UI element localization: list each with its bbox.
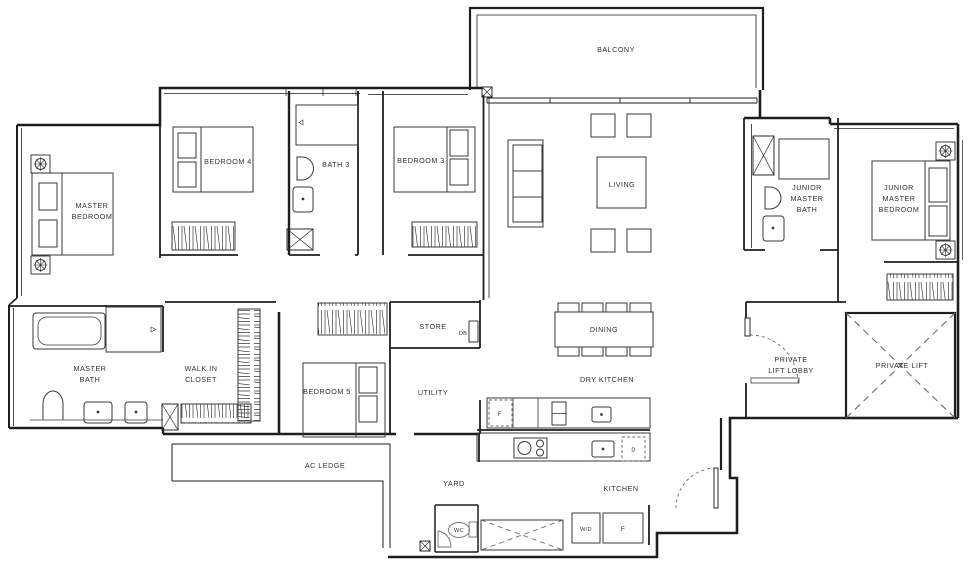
sliding-door xyxy=(487,98,757,103)
label-fridge-dry-kitchen: F xyxy=(498,411,502,418)
dashed-elements xyxy=(481,313,955,550)
lobby-door-leaf xyxy=(745,318,750,336)
label-kitchen: KITCHEN xyxy=(603,484,638,493)
label-dry-kitchen: DRY KITCHEN xyxy=(580,375,634,384)
label-fridge-kitchen: F xyxy=(621,526,625,533)
furniture xyxy=(30,105,953,550)
crosshair-master-top xyxy=(31,155,50,173)
label-jr-master-bedroom-2: MASTER xyxy=(883,194,916,203)
ac-ledge-outline xyxy=(172,444,390,548)
label-master-bath-1: MASTER xyxy=(74,364,107,373)
exterior-top-right xyxy=(744,90,958,124)
label-wc: WC xyxy=(454,528,464,534)
window-line-bed4 xyxy=(164,89,468,96)
lobby-shelf xyxy=(751,378,799,383)
dry-kitchen-counter xyxy=(487,398,650,428)
label-private-lift-lobby-1: PRIVATE xyxy=(774,355,807,364)
label-master-bedroom-2: BEDROOM xyxy=(72,212,113,221)
label-master-bedroom-1: MASTER xyxy=(76,201,109,210)
crosshair-jr-bottom xyxy=(936,241,955,259)
entry-door-leaf xyxy=(714,468,718,508)
label-bedroom-3: BEDROOM 3 xyxy=(397,156,445,165)
trap-balcony-corner xyxy=(482,87,492,97)
toilet-icon xyxy=(765,187,781,209)
label-wd: W/D xyxy=(580,527,592,533)
trap-ac-ledge xyxy=(420,541,430,551)
toilet-icon xyxy=(43,391,63,420)
label-living: LIVING xyxy=(609,180,636,189)
toilet-icon xyxy=(297,157,314,180)
mirror-icon xyxy=(151,327,156,332)
label-ac-ledge: AC LEDGE xyxy=(305,461,345,470)
label-bedroom-5: BEDROOM 5 xyxy=(303,387,351,396)
bedroom4-wardrobe xyxy=(172,222,235,250)
label-balcony: BALCONY xyxy=(597,45,635,54)
label-yard: YARD xyxy=(443,479,464,488)
mirror-icon xyxy=(299,120,303,125)
label-store: STORE xyxy=(419,322,446,331)
exterior-bottom-right xyxy=(388,418,958,557)
left-step xyxy=(9,298,17,305)
label-bedroom-4: BEDROOM 4 xyxy=(204,157,252,166)
label-private-lift-lobby-2: LIFT LOBBY xyxy=(768,366,814,375)
crosshair-master-bottom xyxy=(31,256,50,274)
label-jr-master-bedroom-1: JUNIOR xyxy=(884,183,914,192)
entry-door-arc xyxy=(676,468,716,508)
floor-plan: BALCONY MASTER BEDROOM BEDROOM 4 BATH 3 … xyxy=(0,0,975,567)
label-bath-3: BATH 3 xyxy=(322,160,350,169)
bath3-fixtures xyxy=(293,105,358,212)
symbols xyxy=(31,87,955,551)
label-master-bath-2: BATH xyxy=(80,375,101,384)
label-dishwasher: D xyxy=(631,448,635,454)
yard-opening-x xyxy=(481,520,563,550)
bathtub-icon xyxy=(33,313,105,349)
label-private-lift: PRIVATE LIFT xyxy=(876,361,929,370)
label-dining: DINING xyxy=(590,325,618,334)
floor-trap-closet xyxy=(162,404,178,430)
store-right-wall xyxy=(479,300,480,462)
label-jr-master-bath-2: MASTER xyxy=(791,194,824,203)
bedroom3-wardrobe xyxy=(412,222,477,247)
shower-bath3 xyxy=(287,229,313,250)
label-utility: UTILITY xyxy=(418,388,448,397)
bedroom5-bed xyxy=(303,363,385,437)
bedroom5-wardrobe xyxy=(318,303,387,335)
living-sofa xyxy=(508,140,543,227)
master-bath-bottom-wall xyxy=(9,428,163,434)
label-db: DB xyxy=(459,331,467,337)
shower-jr-bath xyxy=(753,136,774,175)
db-box xyxy=(469,321,478,342)
crosshair-jr-top xyxy=(936,142,955,160)
wc-fixtures xyxy=(438,522,477,547)
label-jr-master-bath-3: BATH xyxy=(797,205,818,214)
jr-wardrobe xyxy=(887,274,953,300)
label-walk-in-closet-1: WALK IN xyxy=(185,364,218,373)
label-walk-in-closet-2: CLOSET xyxy=(185,375,217,384)
label-jr-master-bath-1: JUNIOR xyxy=(792,183,822,192)
floor-plan-svg: BALCONY MASTER BEDROOM BEDROOM 4 BATH 3 … xyxy=(0,0,975,567)
label-jr-master-bedroom-3: BEDROOM xyxy=(879,205,920,214)
